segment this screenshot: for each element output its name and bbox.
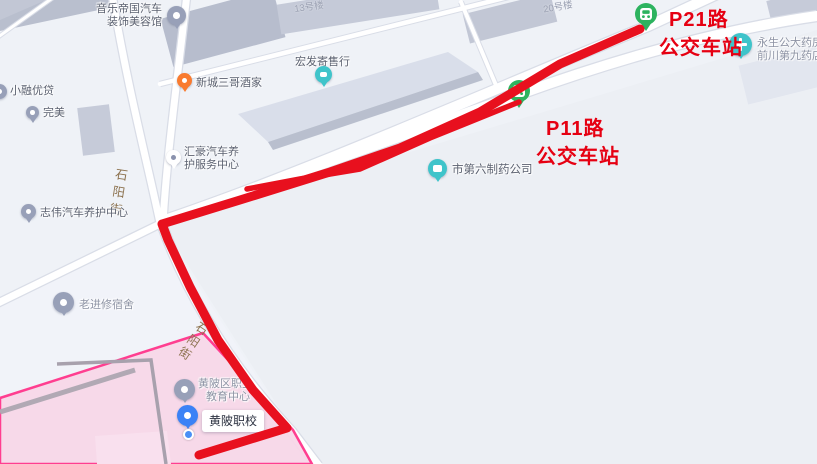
building-label-20: 20号楼 (542, 0, 574, 15)
poi-label-dorm[interactable]: 老进修宿舍 (79, 299, 134, 312)
restaurant-pin-icon[interactable] (177, 73, 192, 88)
location-dot-icon (183, 429, 194, 440)
shop-pin-icon[interactable] (428, 159, 447, 178)
place-pin-icon[interactable] (174, 379, 195, 400)
place-pin-icon[interactable] (167, 6, 186, 25)
poi-label-huihao[interactable]: 汇豪汽车养 护服务中心 (184, 146, 239, 172)
poi-dot-icon[interactable] (166, 150, 181, 165)
poi-label-yongsheng[interactable]: 永生公大药房 前川第九药店 (757, 37, 817, 63)
place-pin-icon[interactable] (53, 292, 74, 313)
poi-dot-icon[interactable] (0, 84, 7, 99)
bus-station-icon-p21[interactable] (633, 2, 659, 32)
poi-label-xiaorong[interactable]: 小融优贷 (10, 85, 54, 98)
shop-pin-icon[interactable] (315, 66, 332, 83)
poi-label-wanmei[interactable]: 完美 (43, 107, 65, 120)
poi-label-car-decor[interactable]: 音乐帝国汽车 装饰美容馆 (94, 3, 162, 29)
building-label-13: 13号楼 (293, 0, 324, 15)
bus-station-icon-p11[interactable] (506, 79, 532, 109)
pharmacy-cross-icon[interactable] (729, 33, 752, 56)
poi-label-edu-center[interactable]: 黄陂区职业 教育中心 (198, 378, 253, 404)
poi-dot-icon[interactable] (26, 106, 39, 119)
poi-label-xincheng[interactable]: 新城三哥酒家 (196, 77, 262, 90)
school-pin-icon[interactable] (177, 405, 198, 426)
school-result-bubble[interactable]: 黄陂职校 (202, 410, 264, 432)
map-screenshot: 石阳街 石阳街 13号楼 20号楼 音乐帝国汽车 装饰美容馆 小融优贷 完美 新… (0, 0, 817, 464)
poi-label-pharma-factory[interactable]: 市第六制药公司 (452, 164, 533, 177)
poi-label-zhiwei[interactable]: 志伟汽车养护中心 (40, 207, 128, 220)
poi-dot-icon[interactable] (21, 204, 36, 219)
